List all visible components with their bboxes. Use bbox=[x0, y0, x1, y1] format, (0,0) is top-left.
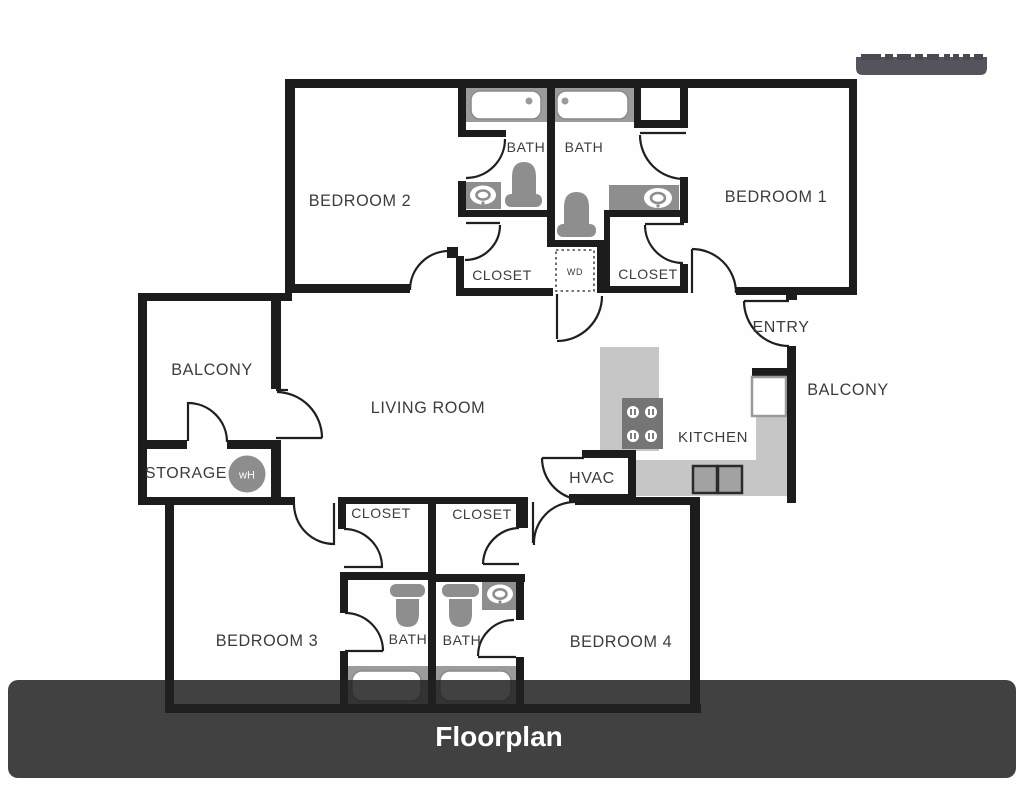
svg-text:Floorplan: Floorplan bbox=[435, 721, 563, 752]
svg-text:KITCHEN: KITCHEN bbox=[678, 429, 748, 446]
svg-text:wH: wH bbox=[238, 470, 255, 482]
svg-text:BEDROOM 4: BEDROOM 4 bbox=[570, 633, 673, 651]
svg-text:BATH: BATH bbox=[507, 139, 546, 155]
svg-text:BEDROOM 1: BEDROOM 1 bbox=[725, 188, 828, 206]
svg-text:BEDROOM 3: BEDROOM 3 bbox=[216, 632, 319, 650]
svg-text:STORAGE: STORAGE bbox=[145, 465, 227, 482]
svg-text:ENTRY: ENTRY bbox=[753, 319, 810, 336]
svg-text:BATH: BATH bbox=[565, 139, 604, 155]
svg-text:BATH: BATH bbox=[389, 631, 428, 647]
svg-text:BATH: BATH bbox=[443, 632, 482, 648]
svg-text:BALCONY: BALCONY bbox=[807, 381, 889, 399]
svg-text:CLOSET: CLOSET bbox=[618, 266, 678, 282]
svg-text:BALCONY: BALCONY bbox=[171, 361, 253, 379]
svg-text:BEDROOM 2: BEDROOM 2 bbox=[309, 192, 412, 210]
svg-text:CLOSET: CLOSET bbox=[472, 267, 532, 283]
svg-text:CLOSET: CLOSET bbox=[351, 505, 411, 521]
svg-text:CLOSET: CLOSET bbox=[452, 506, 512, 522]
svg-text:HVAC: HVAC bbox=[569, 470, 615, 487]
svg-text:LIVING ROOM: LIVING ROOM bbox=[371, 399, 486, 417]
svg-text:WD: WD bbox=[567, 267, 583, 277]
